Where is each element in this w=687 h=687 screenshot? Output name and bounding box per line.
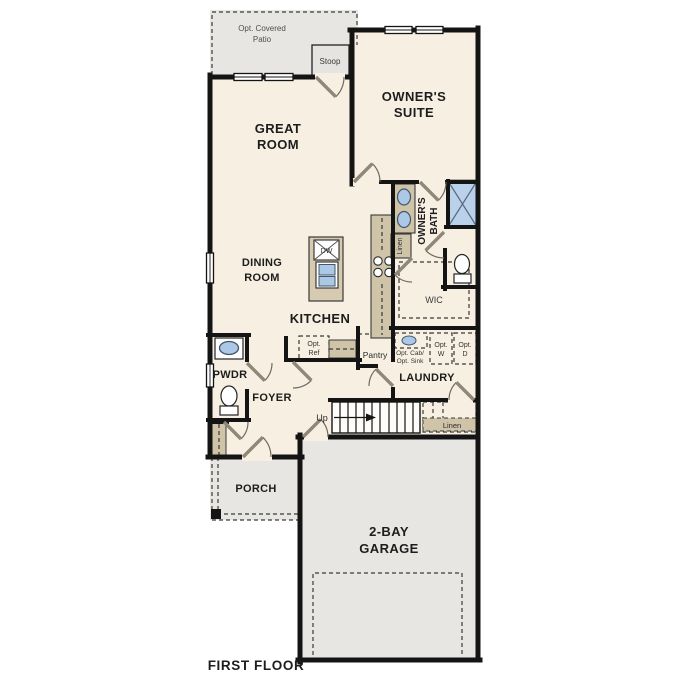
bath-toilet-tank [454, 274, 471, 283]
pwdr-toilet-bowl [221, 386, 237, 406]
opt-sink-label: Opt. Sink [397, 358, 424, 365]
bath-linen-label: Linen [397, 237, 404, 254]
burner-1 [374, 257, 382, 265]
opt-sink-fixture [402, 336, 416, 345]
owners-bath-label-1: OWNER'S [417, 197, 428, 245]
wic-label: WIC [425, 295, 443, 305]
opt-ref-label-2: Ref [309, 350, 320, 357]
pantry-label: Pantry [363, 350, 388, 360]
sink-basin-top [319, 265, 335, 276]
up-label: Up [316, 413, 328, 423]
garage-label-2: GARAGE [359, 541, 418, 556]
opt-washer-label-1: Opt. [434, 342, 447, 349]
patio-label-2: Patio [253, 35, 272, 44]
foyer-label: FOYER [252, 392, 291, 404]
garage-label-1: 2-BAY [369, 524, 409, 539]
kitchen-label: KITCHEN [290, 311, 351, 326]
hall-linen-label: Linen [443, 421, 461, 430]
stoop-label: Stoop [320, 57, 341, 66]
owners-suite-label-2: SUITE [394, 105, 434, 120]
laundry-label: LAUNDRY [399, 372, 455, 384]
sink-basin-bottom [319, 277, 335, 287]
floor-plan-page: Opt. Covered Patio Stoop OWNER'S SUITE G… [0, 0, 687, 687]
great-room-label-1: GREAT [255, 121, 302, 136]
dining-room-label-1: DINING [242, 257, 282, 269]
porch-post [211, 509, 221, 519]
opt-cab-label: Opt. Cab/ [396, 350, 424, 357]
opt-dryer-label-1: Opt. [458, 342, 471, 349]
floor-plan-drawing: Opt. Covered Patio Stoop OWNER'S SUITE G… [0, 0, 687, 687]
vanity-sink-1 [398, 189, 411, 205]
porch-label: PORCH [235, 483, 276, 495]
burner-3 [374, 268, 382, 276]
pwdr-toilet-tank [220, 406, 238, 415]
owners-suite-label-1: OWNER'S [382, 89, 446, 104]
vanity-sink-2 [398, 212, 411, 228]
opt-washer-label-2: W [438, 351, 445, 358]
patio-label-1: Opt. Covered [238, 24, 286, 33]
pwdr-label: PWDR [213, 369, 248, 381]
pwdr-sink [220, 342, 239, 355]
opt-dryer-label-2: D [462, 351, 467, 358]
opt-ref-label-1: Opt. [307, 341, 320, 348]
owners-bath-label-2: BATH [429, 207, 440, 234]
dishwasher-label: DW [321, 248, 333, 255]
plan-title: FIRST FLOOR [208, 658, 305, 673]
great-room-label-2: ROOM [257, 137, 299, 152]
dining-room-label-2: ROOM [244, 272, 279, 284]
bath-toilet-bowl [455, 255, 470, 274]
